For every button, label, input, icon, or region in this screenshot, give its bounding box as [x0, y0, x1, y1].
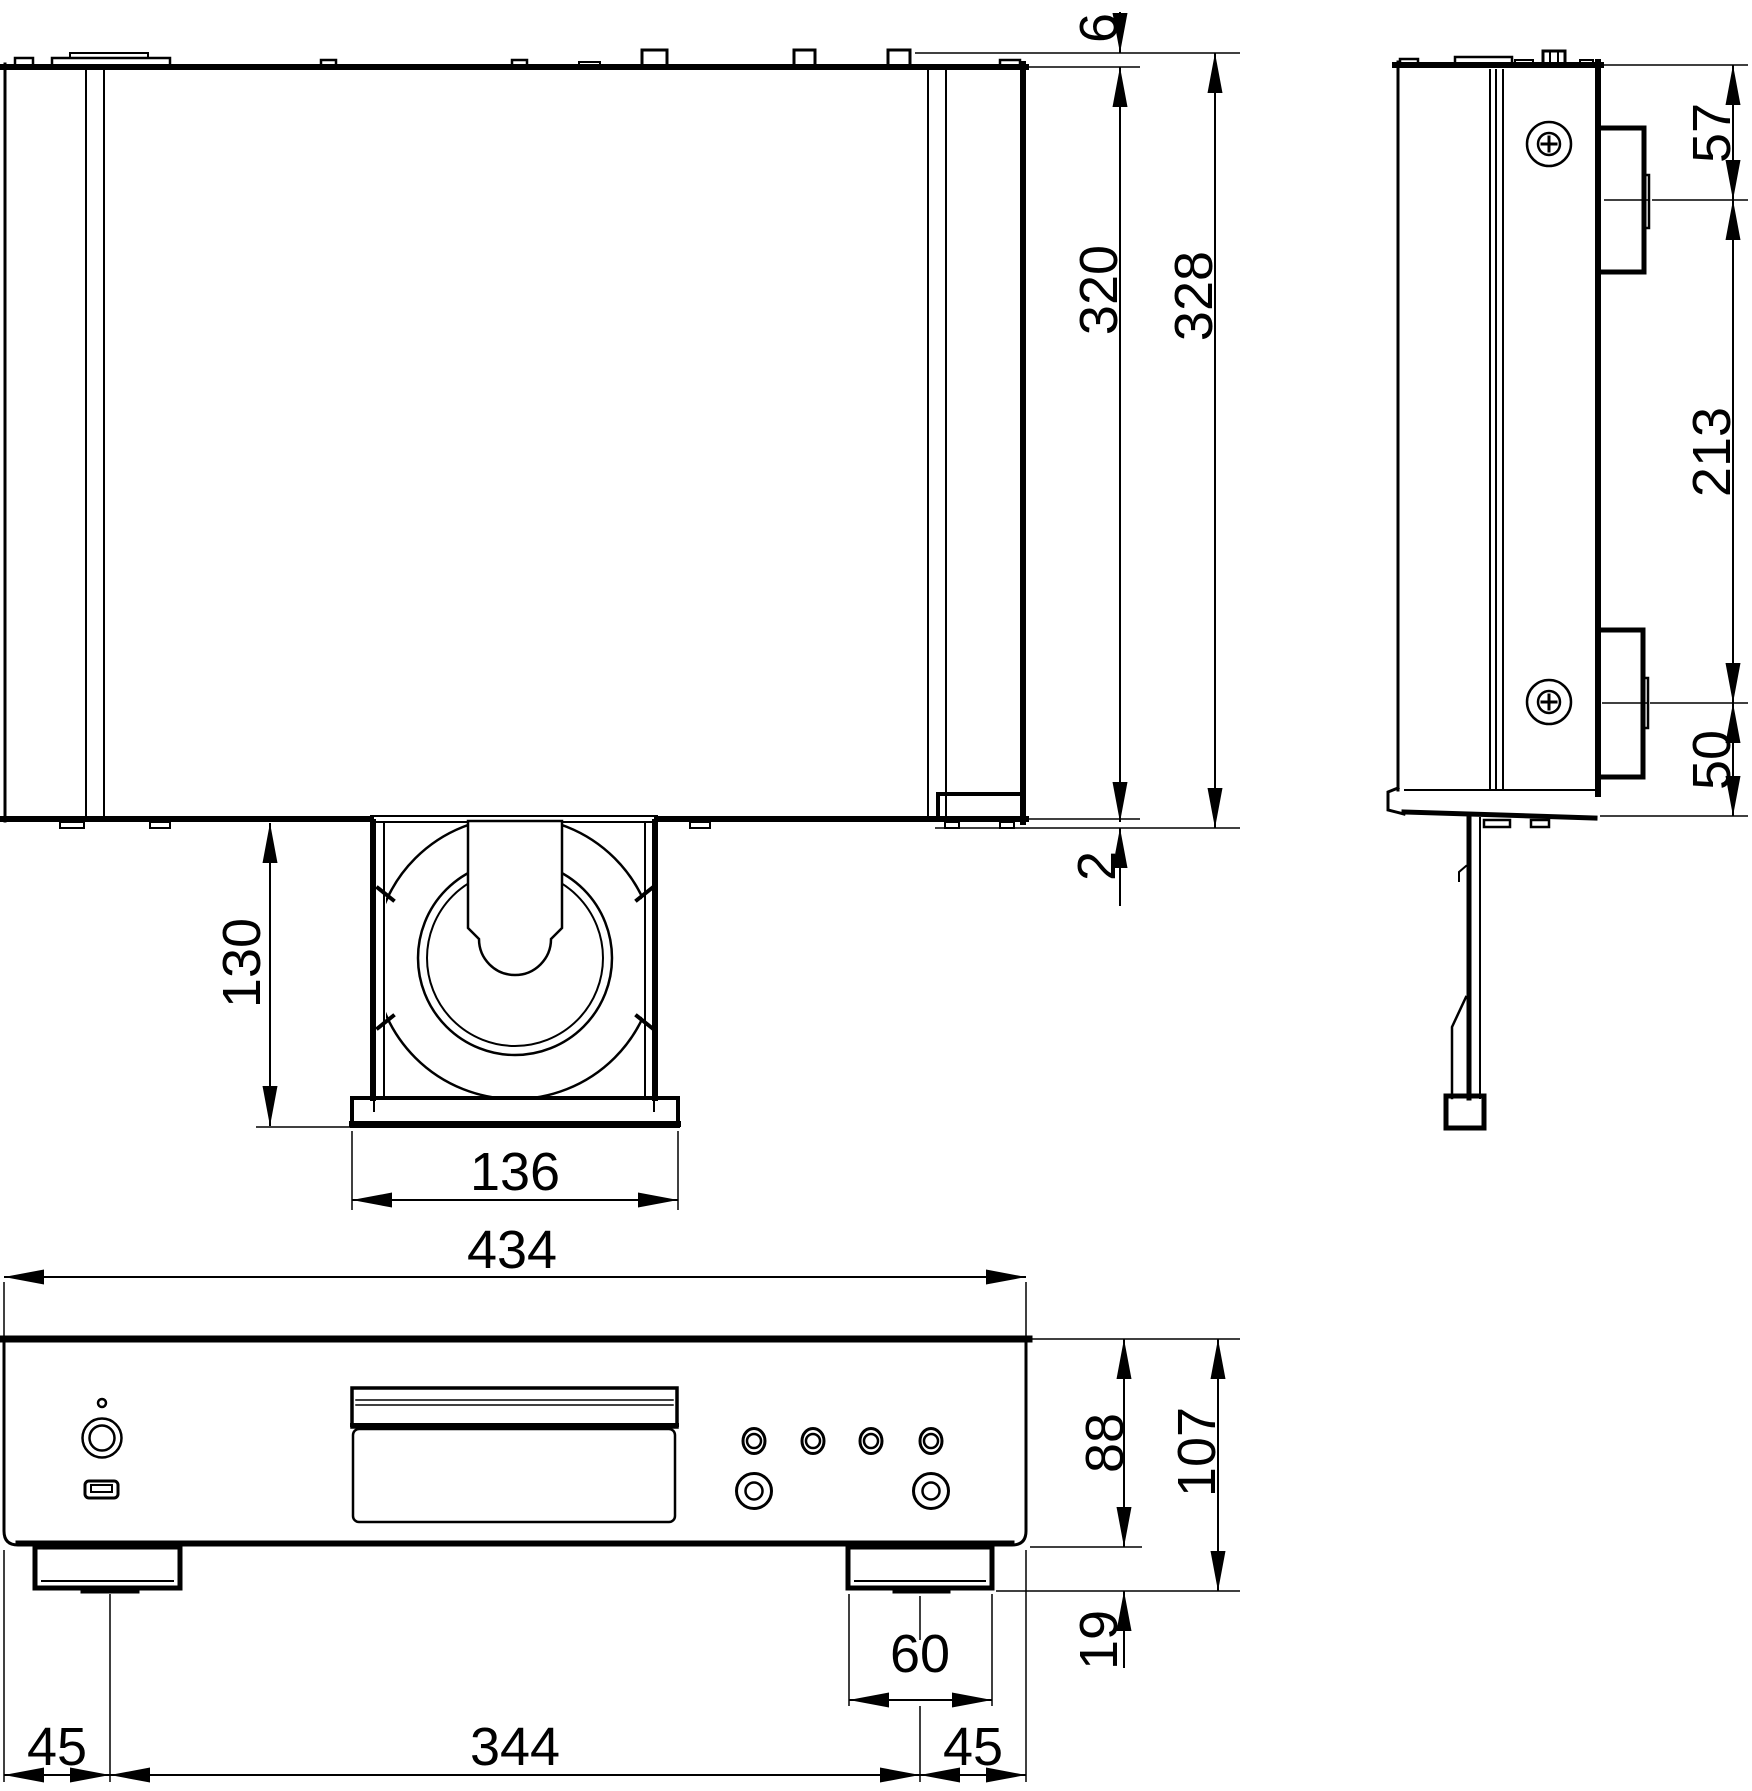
dim-feet-spacing: 213	[1682, 407, 1742, 497]
dim-front-protrusion: 2	[1067, 851, 1127, 881]
dim-top-to-foot: 57	[1682, 103, 1742, 163]
dim-foot-to-bottom: 50	[1682, 730, 1742, 790]
tray-side-outer	[1452, 997, 1466, 1098]
dim-total-depth: 328	[1164, 251, 1224, 341]
dim-panel-height: 88	[1075, 1413, 1135, 1473]
transport-button[interactable]	[802, 1429, 824, 1454]
top-view-left-seam	[86, 70, 104, 816]
side-panel-seams	[1490, 70, 1503, 788]
top-view-dimensions: 6 320 328 2 130 136	[212, 12, 1240, 1210]
tray-side-step	[1459, 866, 1466, 881]
front-view-dimensions: 434 88 107 19 60 45 344 45	[4, 1220, 1240, 1782]
transport-button[interactable]	[920, 1429, 942, 1454]
stop-button[interactable]	[914, 1474, 949, 1509]
disc-tray-top	[352, 817, 678, 1126]
tray-side-bezel	[1446, 1096, 1484, 1128]
dim-foot-width: 60	[890, 1624, 950, 1684]
dim-total-height: 107	[1167, 1407, 1227, 1497]
front-foot-right	[848, 1547, 992, 1591]
power-led-icon	[98, 1399, 106, 1407]
dim-right-foot-offset: 45	[943, 1717, 1003, 1777]
disc-tray-side	[1446, 818, 1484, 1128]
dim-chassis-depth: 320	[1069, 245, 1129, 335]
dim-total-width: 434	[467, 1220, 557, 1280]
front-foot-left	[35, 1547, 180, 1591]
power-button[interactable]	[83, 1419, 122, 1458]
display-window	[353, 1429, 675, 1522]
transport-button[interactable]	[743, 1429, 765, 1454]
top-view: 6 320 328 2 130 136	[2, 12, 1240, 1210]
dim-foot-height: 19	[1069, 1610, 1129, 1670]
dim-tray-extension: 130	[212, 918, 272, 1008]
top-view-right-seam	[928, 70, 946, 816]
usb-port-icon[interactable]	[85, 1481, 118, 1498]
disc-tray-slot[interactable]	[352, 1388, 677, 1427]
side-bottom-edge	[1404, 812, 1595, 818]
side-front-bump	[1531, 820, 1549, 827]
dim-feet-span: 344	[470, 1717, 560, 1777]
dim-rear-protrusion: 6	[1069, 13, 1129, 43]
side-view: 57 213 50	[1388, 51, 1748, 1128]
play-button[interactable]	[737, 1474, 772, 1509]
screw-icon	[1527, 680, 1571, 724]
front-view: 434 88 107 19 60 45 344 45	[1, 1220, 1240, 1782]
dimension-drawing-page: 6 320 328 2 130 136	[0, 0, 1752, 1791]
front-panel-outline	[4, 1339, 1026, 1545]
dim-left-foot-offset: 45	[27, 1717, 87, 1777]
screw-icon	[1527, 122, 1571, 166]
side-front-bump	[1484, 820, 1510, 827]
side-view-dimensions: 57 213 50	[1600, 65, 1748, 816]
clamp-notch	[468, 821, 562, 975]
corner-component	[938, 794, 1023, 816]
transport-button[interactable]	[860, 1429, 882, 1454]
cd-player-dimension-drawing: 6 320 328 2 130 136	[0, 0, 1752, 1791]
dim-tray-width: 136	[470, 1142, 560, 1202]
